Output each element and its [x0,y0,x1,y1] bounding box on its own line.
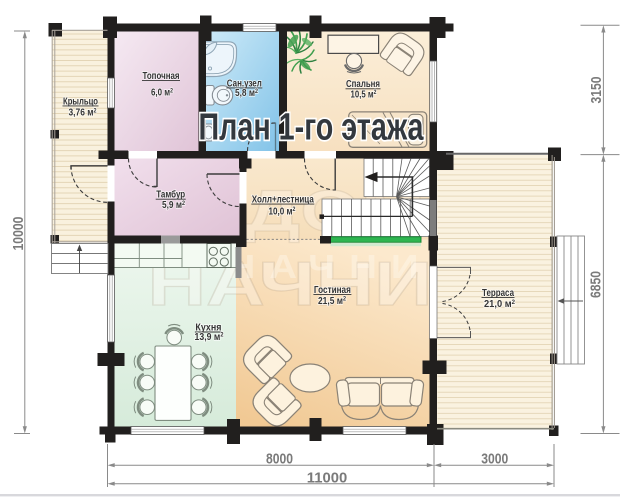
svg-text:10,0 м2: 10,0 м2 [269,206,296,217]
svg-text:13,9 м2: 13,9 м2 [195,332,224,343]
svg-text:21,5 м2: 21,5 м2 [318,296,346,307]
svg-text:8000: 8000 [266,451,293,468]
svg-text:НАЧНИ: НАЧНИ [228,248,433,285]
svg-text:10000: 10000 [10,217,27,251]
svg-text:5,8 м2: 5,8 м2 [235,88,258,99]
svg-text:3150: 3150 [588,77,605,104]
svg-text:3000: 3000 [481,451,508,468]
svg-text:5,9 м2: 5,9 м2 [162,200,185,211]
svg-text:3,76 м2: 3,76 м2 [69,107,97,118]
svg-text:21,0 м2: 21,0 м2 [484,299,515,310]
svg-text:6850: 6850 [588,271,605,298]
svg-text:План 1-го этажа: План 1-го этажа [199,107,425,149]
svg-text:10,5 м2: 10,5 м2 [351,89,377,100]
svg-text:11000: 11000 [307,469,347,486]
svg-text:6,0 м2: 6,0 м2 [151,87,173,98]
